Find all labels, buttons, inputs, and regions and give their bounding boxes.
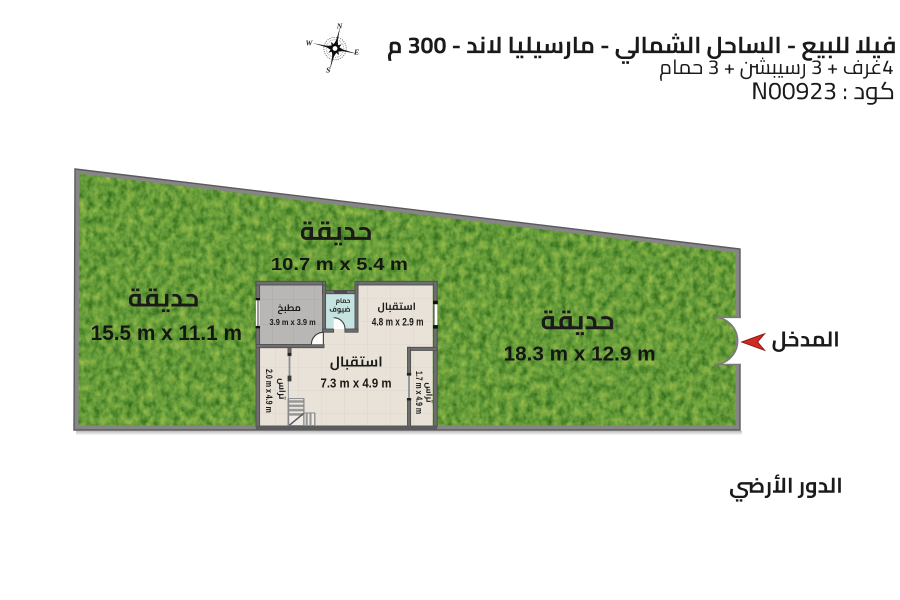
svg-text:7.3 m x 4.9 m: 7.3 m x 4.9 m: [321, 376, 392, 391]
svg-text:S: S: [326, 65, 331, 74]
svg-text:N: N: [336, 21, 343, 30]
svg-text:1.7 m x 4.9 m: 1.7 m x 4.9 m: [414, 371, 424, 414]
svg-text:W: W: [306, 38, 314, 47]
svg-text:4.8 m x 2.9 m: 4.8 m x 2.9 m: [372, 317, 424, 329]
svg-text:E: E: [353, 48, 359, 57]
svg-text:2.0 m x 4.9 m: 2.0 m x 4.9 m: [264, 369, 274, 413]
svg-text:3.9 m x 3.9 m: 3.9 m x 3.9 m: [270, 318, 316, 327]
svg-text:15.5 m x 11.1 m: 15.5 m x 11.1 m: [91, 322, 242, 345]
svg-text:18.3 m x 12.9 m: 18.3 m x 12.9 m: [504, 342, 656, 365]
svg-text:10.7 m x 5.4 m: 10.7 m x 5.4 m: [271, 254, 408, 274]
